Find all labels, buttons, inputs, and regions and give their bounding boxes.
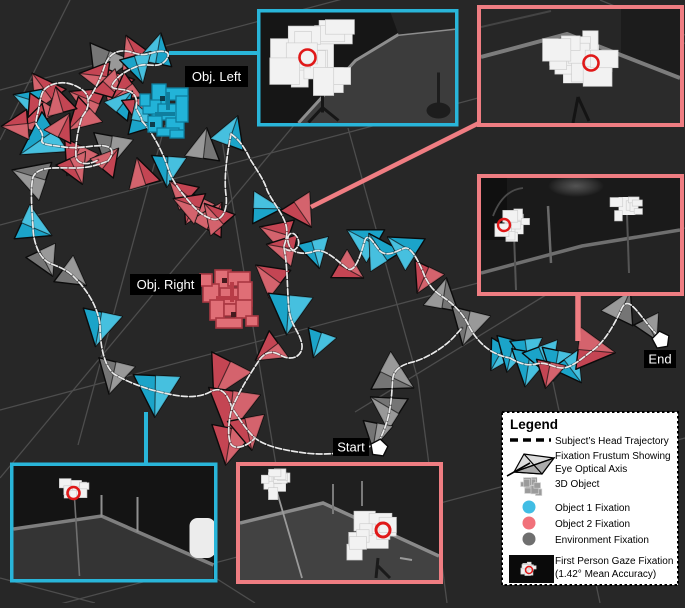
svg-text:Subject’s Head Trajectory: Subject’s Head Trajectory [555, 436, 669, 447]
svg-text:Eye Optical Axis: Eye Optical Axis [555, 464, 627, 475]
svg-text:First Person Gaze Fixation: First Person Gaze Fixation [555, 556, 673, 567]
svg-text:Start: Start [337, 440, 365, 455]
svg-text:Object 2 Fixation: Object 2 Fixation [555, 519, 630, 530]
svg-text:End: End [648, 352, 671, 367]
svg-text:(1.42° Mean Accuracy): (1.42° Mean Accuracy) [555, 569, 656, 580]
svg-text:Obj. Left: Obj. Left [192, 69, 242, 84]
svg-text:Environment Fixation: Environment Fixation [555, 535, 649, 546]
svg-text:Obj. Right: Obj. Right [137, 277, 195, 292]
svg-text:Fixation Frustum Showing: Fixation Frustum Showing [555, 451, 671, 462]
svg-text:Legend: Legend [510, 417, 558, 432]
svg-text:3D Object: 3D Object [555, 479, 600, 490]
svg-text:Object 1 Fixation: Object 1 Fixation [555, 503, 630, 514]
